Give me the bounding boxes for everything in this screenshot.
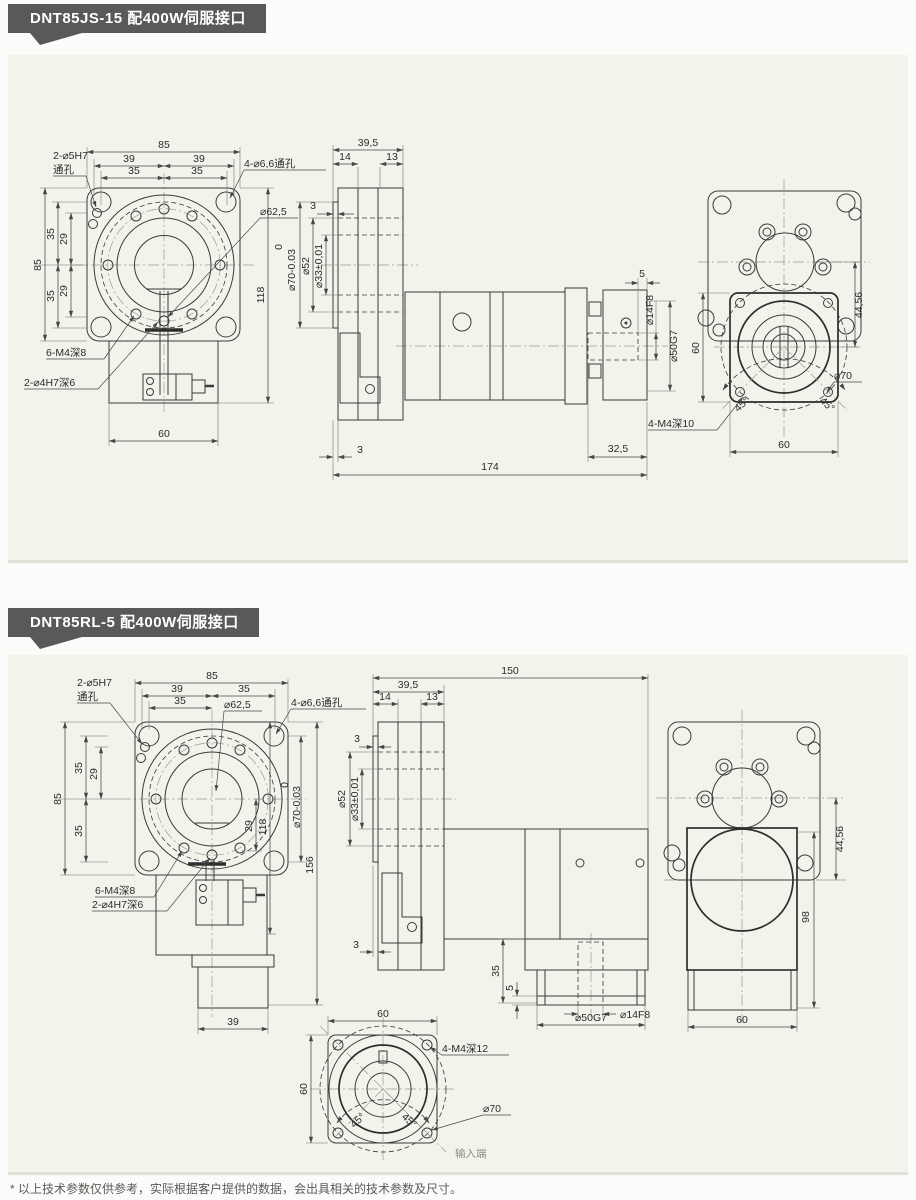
label-6m4: 6-M4深8 xyxy=(95,885,135,897)
gearbox-body xyxy=(444,829,648,1005)
encoder-assembly xyxy=(188,860,265,925)
dim-13: 13 xyxy=(386,151,398,163)
dim-395: 39,5 xyxy=(398,679,419,691)
dim-d33: ⌀33±0,01 xyxy=(313,244,325,288)
tol-0: 0 xyxy=(273,244,285,250)
dim-35-right: 35 xyxy=(191,165,203,177)
dim-35-lower: 35 xyxy=(45,290,57,302)
section1-badge-notch xyxy=(30,33,82,45)
section1-title-badge: DNT85JS-15 配400W伺服接口 xyxy=(8,4,266,33)
dim-60-bottom: 60 xyxy=(778,439,790,451)
dim-35-upper: 35 xyxy=(73,762,85,774)
section1-drawing-panel: 85 39 39 35 35 85 35 29 35 29 118 60 2-⌀… xyxy=(8,55,908,563)
dim-d50g7: ⌀50G7 xyxy=(575,1012,607,1024)
label-2x5h7: 2-⌀5H7 xyxy=(53,150,88,162)
foot-outline xyxy=(109,341,218,403)
front-view: 85 39 35 35 85 35 29 35 29 118 0 ⌀70-0.0… xyxy=(52,670,366,1034)
dim-85-side: 85 xyxy=(52,793,64,805)
dim-d52: ⌀52 xyxy=(336,790,348,808)
bottom-view: 45° 45° 60 60 4-M4深12 ⌀70 输入端 xyxy=(298,1008,511,1160)
extension-lines xyxy=(296,145,676,480)
page-footnote: * 以上技术参数仅供参考，实际根据客户提供的数据，会出具相关的技术参数及尺寸。 xyxy=(10,1180,462,1197)
extension-lines xyxy=(688,832,846,1032)
label-through-hole: 通孔 xyxy=(77,690,98,703)
dim-5: 5 xyxy=(504,985,516,991)
dim-85-side: 85 xyxy=(32,259,44,271)
dim-14: 14 xyxy=(379,691,391,703)
dim-5: 5 xyxy=(639,268,645,280)
section2-drawing-panel: 85 39 35 35 85 35 29 35 29 118 0 ⌀70-0.0… xyxy=(8,655,908,1175)
dim-4456: 44,56 xyxy=(853,292,865,318)
dim-4456: 44,56 xyxy=(834,826,846,852)
dim-395: 39,5 xyxy=(358,137,379,149)
label-4m4: 4-M4深10 xyxy=(648,418,694,430)
dim-29-upper: 29 xyxy=(58,233,70,245)
dim-35-left: 35 xyxy=(128,165,140,177)
dim-35-upper: 35 xyxy=(45,228,57,240)
extension-lines xyxy=(40,147,274,446)
dim-60-top: 60 xyxy=(377,1008,389,1020)
section2-badge-notch xyxy=(30,637,82,649)
label-4x66: 4-⌀6,6通孔 xyxy=(244,157,296,170)
label-4x66: 4-⌀6,6通孔 xyxy=(291,696,343,709)
label-625: ⌀62,5 xyxy=(224,699,251,711)
label-d70: ⌀70 xyxy=(483,1103,501,1115)
dim-13: 13 xyxy=(426,691,438,703)
tol-d70: ⌀70-0.03 xyxy=(291,786,303,828)
dim-60-left: 60 xyxy=(690,342,702,354)
dim-150: 150 xyxy=(501,665,519,677)
label-4m4-12: 4-M4深12 xyxy=(442,1043,488,1055)
dim-156: 156 xyxy=(304,856,316,874)
dim-45-right: 45° xyxy=(817,395,837,415)
dim-35-left: 35 xyxy=(174,695,186,707)
section2-title-badge: DNT85RL-5 配400W伺服接口 xyxy=(8,608,259,637)
label-through-hole: 通孔 xyxy=(53,163,74,176)
label-2x5h7: 2-⌀5H7 xyxy=(77,677,112,689)
side-view: 150 39,5 14 13 3 ⌀52 ⌀33±0,01 3 35 5 ⌀14… xyxy=(336,665,650,1030)
dim-3-bottom: 3 xyxy=(357,444,363,456)
dim-325: 32,5 xyxy=(608,443,629,455)
housing-outline xyxy=(156,875,267,955)
dim-d14f8: ⌀14F8 xyxy=(644,295,656,325)
section1-title: DNT85JS-15 配400W伺服接口 xyxy=(30,10,246,27)
dim-29-upper: 29 xyxy=(88,768,100,780)
dim-85-top: 85 xyxy=(158,139,170,151)
dim-3-top: 3 xyxy=(354,733,360,745)
dim-39-right: 39 xyxy=(193,153,205,165)
tol-d70: ⌀70-0.03 xyxy=(286,249,298,291)
rear-view: 45° 45° 44,56 60 60 ⌀70 4-M4深10 xyxy=(648,179,870,457)
motor-bolt-holes xyxy=(739,224,831,275)
label-d70: ⌀70 xyxy=(834,370,852,382)
label-input-end: 输入端 xyxy=(455,1147,487,1160)
front-view: 85 39 39 35 35 85 35 29 35 29 118 60 2-⌀… xyxy=(24,139,326,446)
dim-174: 174 xyxy=(481,461,499,473)
label-2x4h7: 2-⌀4H7深6 xyxy=(24,377,75,389)
dim-29-lower: 29 xyxy=(58,285,70,297)
dim-60-left: 60 xyxy=(298,1083,310,1095)
dim-d33: ⌀33±0,01 xyxy=(349,777,361,821)
dim-d50g7: ⌀50G7 xyxy=(668,330,680,362)
label-625: ⌀62,5 xyxy=(260,206,287,218)
dim-3-bottom: 3 xyxy=(353,939,359,951)
dim-35-lower: 35 xyxy=(73,825,85,837)
encoder-assembly xyxy=(143,291,214,400)
tol-0: 0 xyxy=(279,782,291,788)
rear-view: 44,56 98 60 xyxy=(656,710,846,1032)
sensor-bracket xyxy=(382,873,422,943)
dim-3-top: 3 xyxy=(310,200,316,212)
dim-35-right: 35 xyxy=(238,683,250,695)
motor-outline xyxy=(198,967,268,1008)
dim-14: 14 xyxy=(339,151,351,163)
dim-29-right: 29 xyxy=(243,820,255,832)
side-view: 39,5 14 13 3 0 ⌀70-0.03 ⌀52 ⌀33±0,01 5 ⌀… xyxy=(273,137,680,480)
dim-45-left: 45° xyxy=(348,1111,368,1131)
dnt85rl5-technical-drawing: 85 39 35 35 85 35 29 35 29 118 0 ⌀70-0.0… xyxy=(8,655,908,1172)
dim-98: 98 xyxy=(800,911,812,923)
dim-39-left: 39 xyxy=(123,153,135,165)
dim-d52: ⌀52 xyxy=(300,257,312,275)
dim-60-bottom: 60 xyxy=(158,428,170,440)
section2-title: DNT85RL-5 配400W伺服接口 xyxy=(30,614,239,631)
sensor-bracket xyxy=(340,333,380,403)
dim-39: 39 xyxy=(171,683,183,695)
dim-85-top: 85 xyxy=(206,670,218,682)
dim-35: 35 xyxy=(490,965,502,977)
dnt85js15-technical-drawing: 85 39 39 35 35 85 35 29 35 29 118 60 2-⌀… xyxy=(8,55,908,560)
dim-d14f8: ⌀14F8 xyxy=(620,1009,650,1021)
label-6m4: 6-M4深8 xyxy=(46,347,86,359)
dim-39-bottom: 39 xyxy=(227,1016,239,1028)
label-2x4h7: 2-⌀4H7深6 xyxy=(92,899,143,911)
dim-118: 118 xyxy=(255,286,267,303)
dim-118: 118 xyxy=(257,818,269,835)
dim-60-bottom: 60 xyxy=(736,1014,748,1026)
dim-45-right: 45° xyxy=(399,1111,419,1131)
